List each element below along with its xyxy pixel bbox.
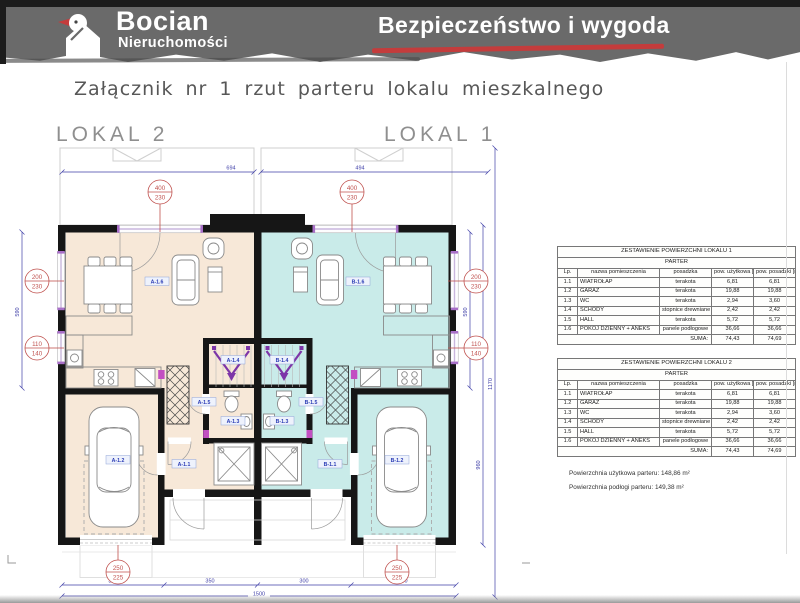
svg-text:230: 230 [347,195,358,202]
svg-text:A-1.3: A-1.3 [227,419,240,425]
svg-text:590: 590 [15,307,21,316]
svg-text:400: 400 [155,185,166,192]
brand-subtitle: Nieruchomości [118,35,228,51]
floor-plan: 694 494 590 590 960 1170 350 350 300 350… [0,105,560,603]
svg-text:110: 110 [471,341,481,348]
marker-door-top-left: 400 230 [148,180,172,232]
logo: Bocian Nieruchomości [58,4,378,58]
svg-text:140: 140 [32,351,43,358]
page: Bocian Nieruchomości Bezpieczeństwo i wy… [0,0,800,603]
room-label-a11: A-1.1 [172,460,196,469]
svg-text:B-1.1: B-1.1 [324,462,337,468]
terrace-outlines [60,148,452,225]
marker-garage-door-left: 250 225 [106,545,130,584]
svg-text:B-1.4: B-1.4 [276,358,289,364]
svg-text:B-1.6: B-1.6 [352,279,365,285]
svg-text:A-1.6: A-1.6 [151,279,164,285]
svg-text:225: 225 [113,575,124,582]
frame-corner-marks [8,555,530,563]
scan-line [786,62,787,554]
svg-text:200: 200 [471,274,482,281]
svg-text:250: 250 [392,565,403,572]
svg-text:960: 960 [476,460,482,469]
unit-right-title: LOKAL 1 [384,123,496,146]
page-title: Załącznik nr 1 rzut parteru lokalu miesz… [74,78,604,100]
svg-text:A-1.5: A-1.5 [198,400,211,406]
room-label-b11: B-1.1 [318,460,342,469]
summary-usable-area: Powierzchnia użytkowa parteru: 148,86 m² [569,467,795,481]
svg-text:494: 494 [355,166,364,172]
photo-edge-top [0,0,800,7]
area-table-lokal-2: ZESTAWIENIE POWIERZCHNI LOKALU 2PARTERLp… [557,358,796,457]
area-table-lokal-1: ZESTAWIENIE POWIERZCHNI LOKALU 1PARTERLp… [557,246,796,345]
area-summary: Powierzchnia użytkowa parteru: 148,86 m²… [569,467,795,495]
marker-garage-door-right: 250 225 [385,545,409,584]
room-label-b15: B-1.5 [299,398,323,407]
svg-text:1170: 1170 [488,378,494,390]
svg-text:400: 400 [347,185,358,192]
brand-name: Bocian [116,6,209,37]
room-label-a15: A-1.5 [192,398,216,407]
room-label-a12: A-1.2 [106,456,130,465]
header-tagline: Bezpieczeństwo i wygoda [378,12,670,39]
room-label-a16: A-1.6 [145,277,169,286]
svg-text:590: 590 [463,307,469,316]
svg-text:300: 300 [299,579,308,585]
room-label-b16: B-1.6 [346,277,370,286]
svg-text:225: 225 [392,575,403,582]
svg-text:A-1.1: A-1.1 [178,462,191,468]
svg-text:230: 230 [155,195,166,202]
room-label-b14: B-1.4 [270,356,294,365]
svg-text:694: 694 [226,166,235,172]
svg-text:B-1.5: B-1.5 [305,400,318,406]
area-tables-panel: ZESTAWIENIE POWIERZCHNI LOKALU 1PARTERLp… [557,246,795,495]
svg-text:A-1.2: A-1.2 [112,458,125,464]
room-label-a14: A-1.4 [221,356,245,365]
photo-edge-bottom [0,595,800,603]
room-label-a13: A-1.3 [221,417,245,426]
svg-text:140: 140 [471,351,482,358]
svg-text:250: 250 [113,565,124,572]
photo-edge-left [0,0,6,64]
svg-text:230: 230 [471,284,482,291]
summary-floor-area: Powierzchnia podłogi parteru: 149,38 m² [569,481,795,495]
svg-text:A-1.4: A-1.4 [227,358,240,364]
svg-text:350: 350 [205,579,214,585]
svg-text:230: 230 [32,284,43,291]
room-label-b13: B-1.3 [270,417,294,426]
svg-text:110: 110 [32,341,42,348]
room-label-b12: B-1.2 [385,456,409,465]
svg-text:B-1.2: B-1.2 [391,458,404,464]
unit-left-title: LOKAL 2 [56,123,168,146]
svg-text:200: 200 [32,274,43,281]
svg-text:B-1.3: B-1.3 [276,419,289,425]
marker-door-top-right: 400 230 [340,180,364,232]
